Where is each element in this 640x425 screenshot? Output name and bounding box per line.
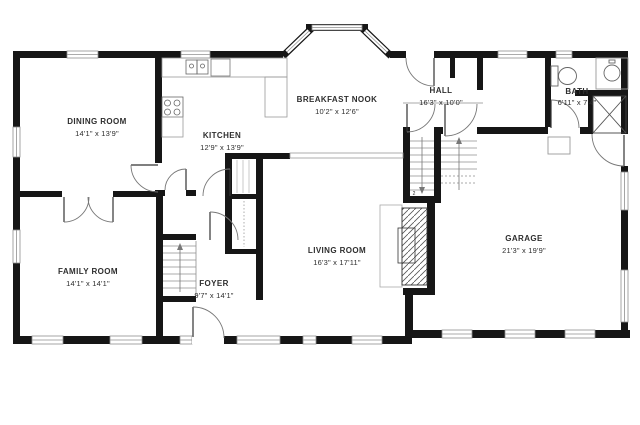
room-dims: 21'3" x 19'9" [502,246,546,255]
window [565,330,595,338]
kitchen-fixtures [162,58,287,247]
room-label-kitchen: KITCHEN12'9" x 13'9" [200,131,244,152]
room-dims: 14'1" x 13'9" [75,129,119,138]
room-dims: 12'9" x 13'9" [200,143,244,152]
kitchen-counter [162,58,287,77]
wall [477,58,483,90]
window [442,330,472,338]
wall [545,58,551,127]
room-label-family: FAMILY ROOM14'1" x 14'1" [58,267,118,288]
room-label-living: LIVING ROOM16'3" x 17'11" [308,246,366,267]
window [621,270,628,322]
window [303,336,316,344]
foyer-closet-door [210,212,238,240]
family-room-double-door-right [88,197,113,222]
window [13,127,20,157]
wall [225,194,263,199]
wall [450,58,455,78]
wall [156,296,196,302]
toilet-icon [551,66,577,86]
dining-room-door [131,165,158,192]
front-door [193,307,224,338]
bay-window-mullion [287,31,309,52]
wall [403,288,435,295]
room-dims: 9'7" x 14'1" [194,291,233,300]
front-door-opening [192,336,224,344]
room-dims: 16'3" x 17'11" [313,258,361,267]
garage-entry-door [592,134,624,166]
room-name: BREAKFAST NOOK [297,95,378,104]
floor-plan: DINING ROOM14'1" x 13'9" KITCHEN12'9" x … [0,0,640,425]
window [352,336,382,344]
window [237,336,280,344]
floor-plan-drawing: DINING ROOM14'1" x 13'9" KITCHEN12'9" x … [0,0,640,425]
room-dims: 16'3" x 10'0" [419,98,463,107]
room-name: GARAGE [505,234,543,243]
room-name: BATH [565,87,588,96]
window [498,51,527,58]
back-door [406,58,434,86]
wall [256,153,263,300]
wall [427,196,435,295]
room-dims: 10'2" x 12'6" [315,107,359,116]
back-door-opening [406,51,434,58]
wall [156,191,163,336]
room-label-garage: GARAGE21'3" x 19'9" [502,234,546,255]
arrow-up-icon [456,137,462,144]
cased-opening [290,153,403,158]
wall [186,190,196,196]
wall [113,191,159,197]
arrow-down-icon [419,187,425,194]
room-label-nook: BREAKFAST NOOK10'2" x 12'6" [297,95,378,116]
wall [434,127,441,203]
wall [405,288,413,336]
kitchen-sink-icon [186,60,208,74]
wall [13,51,283,58]
room-name: KITCHEN [203,131,241,140]
wall [225,249,263,254]
fireplace-chimney [402,208,427,285]
pantry-shelves [237,160,249,193]
window [180,336,192,344]
room-name: LIVING ROOM [308,246,366,255]
room-label-foyer: FOYER9'7" x 14'1" [194,279,233,300]
fireplace-hearth [380,205,402,287]
room-label-dining: DINING ROOM14'1" x 13'9" [67,117,127,138]
wall [155,58,162,163]
bay-window [283,24,391,56]
wall [477,127,548,134]
upper-stairs-door [445,104,477,136]
basement-stairs-door [407,104,435,132]
room-dims: 6'11" x 7'4" [558,98,597,107]
window [181,51,210,58]
room-name: DINING ROOM [67,117,127,126]
kitchen-counter [265,77,287,117]
stair-number-label: 2 [413,191,416,197]
window [13,230,20,263]
window [32,336,63,344]
wall [403,196,441,203]
room-dims: 14'1" x 14'1" [66,279,110,288]
window [67,51,98,58]
family-room-double-door-left [64,197,89,222]
arrow-up-icon [177,243,183,250]
wall [403,127,410,203]
fireplace [380,205,427,287]
window [621,172,628,210]
stove-icon [162,97,183,137]
stairs-center-down [410,137,434,194]
wall [156,234,196,240]
stairs-center-up [441,137,477,190]
living-room-closet [548,137,570,154]
wall [225,153,232,254]
window [505,330,535,338]
room-name: HALL [430,86,453,95]
kitchen-passage-door [165,169,186,190]
window [110,336,142,344]
refrigerator [211,59,230,76]
room-name: FOYER [199,279,229,288]
wall [13,191,62,197]
room-name: FAMILY ROOM [58,267,118,276]
room-label-hall: HALL16'3" x 10'0" [419,86,463,107]
bay-window-mullion [365,31,387,52]
stairs-foyer-basement [163,241,196,296]
window [312,25,362,30]
window [556,51,572,58]
